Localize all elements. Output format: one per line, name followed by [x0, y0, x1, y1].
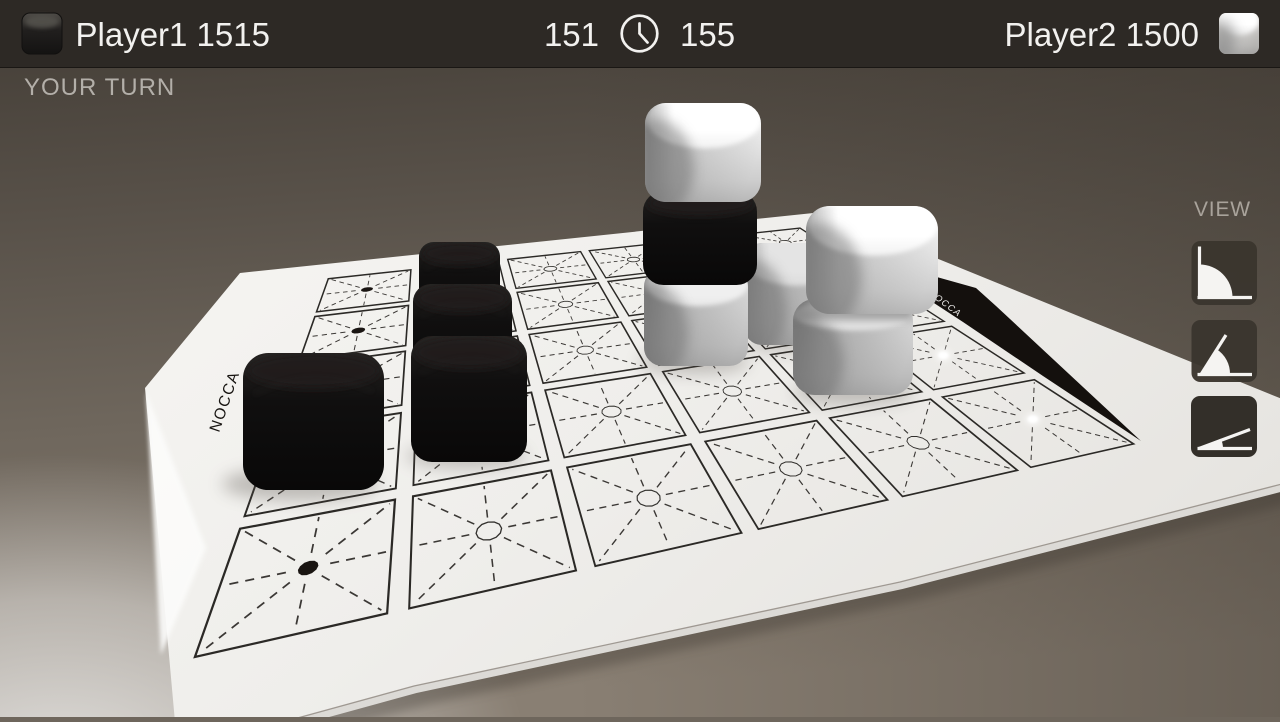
svg-text:Player1 1515: Player1 1515 [76, 16, 270, 53]
svg-text:YOUR TURN: YOUR TURN [24, 74, 175, 101]
svg-text:VIEW: VIEW [1194, 198, 1251, 221]
svg-text:151: 151 [544, 16, 599, 53]
svg-text:155: 155 [680, 16, 735, 53]
svg-text:Player2 1500: Player2 1500 [1005, 16, 1199, 53]
